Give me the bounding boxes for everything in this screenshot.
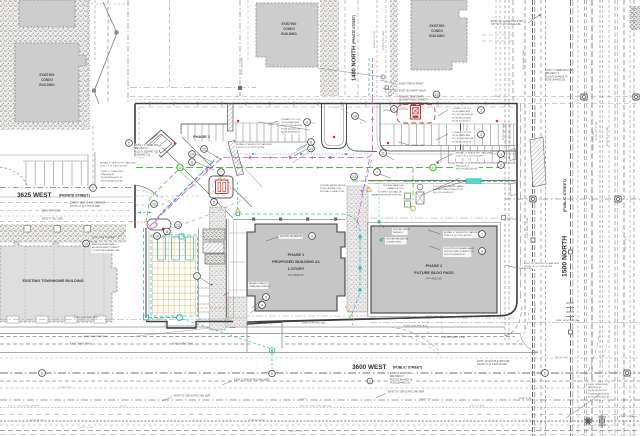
svg-text:1480 NORTH: 1480 NORTH bbox=[352, 46, 358, 81]
svg-text:PHASE LINE: PHASE LINE bbox=[411, 144, 424, 147]
svg-text:EXIST 8" WL: EXIST 8" WL bbox=[60, 387, 73, 389]
svg-text:5: 5 bbox=[213, 200, 215, 204]
svg-text:W: W bbox=[155, 372, 157, 374]
svg-text:EXISTING: EXISTING bbox=[40, 73, 55, 77]
svg-text:MANHOLE #4T2: MANHOLE #4T2 bbox=[388, 187, 405, 190]
svg-text:EXISTING TOWNHOME BUILDING: EXISTING TOWNHOME BUILDING bbox=[22, 279, 83, 283]
svg-text:9: 9 bbox=[481, 249, 483, 253]
svg-text:EXIST. ELECTRIC BOX: EXIST. ELECTRIC BOX bbox=[404, 326, 428, 328]
svg-text:6: 6 bbox=[191, 160, 193, 164]
svg-text:EXIST. GAS LINE: EXIST. GAS LINE bbox=[502, 123, 505, 140]
svg-text:EXIST. ELECTRIC LINE: EXIST. ELECTRIC LINE bbox=[510, 123, 512, 146]
svg-text:EXISTING: EXISTING bbox=[430, 24, 445, 28]
svg-text:RIM=4625.26: RIM=4625.26 bbox=[588, 387, 602, 389]
svg-text:PROPOSED BUILDING A1: PROPOSED BUILDING A1 bbox=[272, 259, 321, 264]
svg-text:RIM=4626.52: RIM=4626.52 bbox=[101, 174, 115, 176]
svg-text:12: 12 bbox=[202, 147, 206, 151]
svg-text:EXIST. 4" SDMH-W03 140: EXIST. 4" SDMH-W03 140 bbox=[545, 70, 573, 72]
svg-text:CONNECT TO TOP: CONNECT TO TOP bbox=[452, 132, 472, 134]
svg-text:16: 16 bbox=[353, 114, 357, 118]
svg-text:EXIST 16" SDR-35 PVC SAN SWR: EXIST 16" SDR-35 PVC SAN SWR bbox=[388, 391, 424, 394]
svg-text:INSTALL DUAL EV: INSTALL DUAL EV bbox=[249, 282, 268, 285]
svg-text:(PRIVATE STREET): (PRIVATE STREET) bbox=[59, 194, 90, 198]
svg-text:INSTALL 4" SDMH-W03: INSTALL 4" SDMH-W03 bbox=[456, 162, 480, 165]
svg-text:BUILDING: BUILDING bbox=[429, 34, 445, 38]
svg-text:FL(OUT) 40=4622.00: FL(OUT) 40=4622.00 bbox=[280, 236, 303, 238]
svg-text:SERVICE: SERVICE bbox=[393, 232, 403, 234]
svg-text:EXIST. 12" PVC IRR: EXIST. 12" PVC IRR bbox=[607, 127, 609, 146]
svg-text:REMOVE TEMPORARY: REMOVE TEMPORARY bbox=[399, 96, 425, 99]
svg-text:BLOWOFF AND CONNECT: BLOWOFF AND CONNECT bbox=[399, 99, 428, 102]
svg-text:12: 12 bbox=[152, 202, 156, 206]
svg-text:FUTURE IRRIGATION: FUTURE IRRIGATION bbox=[386, 238, 408, 241]
svg-text:137.67 L.F. @ 1.70% SLOPE: 137.67 L.F. @ 1.70% SLOPE bbox=[70, 206, 100, 208]
svg-text:FL(IN) (S)=4612.05: FL(IN) (S)=4612.05 bbox=[390, 383, 411, 385]
svg-text:OF SS MAIN 4650: OF SS MAIN 4650 bbox=[281, 121, 300, 124]
svg-text:PHASE 1: PHASE 1 bbox=[288, 252, 305, 257]
svg-text:9: 9 bbox=[311, 234, 313, 238]
svg-text:EXIST. ELECTRIC BOX: EXIST. ELECTRIC BOX bbox=[84, 336, 108, 338]
svg-text:INSTALL 4" SDMH-W03: INSTALL 4" SDMH-W03 bbox=[134, 144, 159, 147]
svg-text:EXIST. 21" SAN S: EXIST. 21" SAN S bbox=[619, 415, 637, 418]
svg-text:EXIST 12" PVC: EXIST 12" PVC bbox=[535, 106, 537, 120]
svg-text:1: 1 bbox=[500, 152, 502, 156]
svg-text:5: 5 bbox=[265, 295, 267, 299]
svg-text:G-17 PUE: G-17 PUE bbox=[507, 219, 517, 221]
svg-text:EXIST 16" SDR-35 PVC SAN SWR: EXIST 16" SDR-35 PVC SAN SWR bbox=[8, 405, 40, 408]
svg-text:S: S bbox=[432, 166, 434, 170]
svg-text:CONNECT TO TOP: CONNECT TO TOP bbox=[452, 108, 472, 110]
svg-text:PHASE 1: PHASE 1 bbox=[193, 134, 211, 139]
svg-text:EXIST 8" PVC WL: EXIST 8" PVC WL bbox=[42, 211, 61, 213]
svg-text:TO EXISTING WATER LINE: TO EXISTING WATER LINE bbox=[92, 249, 120, 252]
svg-text:FL(IN) (N)=4617.07: FL(IN) (N)=4617.07 bbox=[588, 390, 608, 392]
svg-text:3: 3 bbox=[306, 120, 308, 124]
svg-text:EXIST: EXIST bbox=[300, 399, 307, 401]
svg-text:EXIST. FIRE HYDRANT: EXIST. FIRE HYDRANT bbox=[399, 83, 424, 86]
svg-text:1: 1 bbox=[481, 232, 483, 236]
svg-text:EXIST. 24" IRR: EXIST. 24" IRR bbox=[250, 419, 264, 421]
svg-text:EXIST. ASPH. TRAIL: EXIST. ASPH. TRAIL bbox=[526, 217, 529, 238]
svg-text:(PUBLIC STREET): (PUBLIC STREET) bbox=[393, 366, 422, 370]
svg-text:PHASE 2: PHASE 2 bbox=[426, 263, 443, 268]
svg-text:FOR FUTURE CONNECTION: FOR FUTURE CONNECTION bbox=[433, 189, 463, 191]
svg-text:EXIST 15" RCP: EXIST 15" RCP bbox=[625, 235, 627, 250]
svg-text:CONDO: CONDO bbox=[41, 78, 53, 82]
svg-text:FL(OUT) (SE)=4617.32: FL(OUT) (SE)=4617.32 bbox=[134, 151, 159, 153]
svg-text:EXIST 16" SDR: EXIST 16" SDR bbox=[470, 406, 485, 408]
svg-text:5: 5 bbox=[393, 107, 395, 111]
svg-text:3: 3 bbox=[480, 108, 482, 112]
svg-text:FL(OUT) (E)=4618.45: FL(OUT) (E)=4618.45 bbox=[452, 138, 474, 140]
svg-text:FL(IN) (E)=4618.02: FL(IN) (E)=4618.02 bbox=[452, 120, 472, 122]
svg-text:7: 7 bbox=[196, 274, 198, 278]
svg-text:RIM=4627.71: RIM=4627.71 bbox=[545, 73, 560, 75]
svg-text:105.86 L.F. @ 0.02% SLOPE: 105.86 L.F. @ 0.02% SLOPE bbox=[477, 364, 507, 366]
svg-text:EXIST. 12" PVC IRR: EXIST. 12" PVC IRR bbox=[593, 131, 595, 150]
svg-text:RIM=4624.37: RIM=4624.37 bbox=[390, 376, 405, 378]
svg-text:13: 13 bbox=[84, 242, 88, 246]
svg-text:3: 3 bbox=[480, 133, 482, 137]
svg-text:4: 4 bbox=[261, 303, 263, 307]
svg-text:14: 14 bbox=[190, 152, 194, 156]
svg-text:40.66 L.F. @ 0.77% SLOPE: 40.66 L.F. @ 0.77% SLOPE bbox=[444, 235, 472, 237]
svg-text:FL(IN) (N)=4618.45: FL(IN) (N)=4618.45 bbox=[452, 141, 472, 143]
svg-text:7: 7 bbox=[376, 170, 378, 174]
svg-text:EXIST 8" WL: EXIST 8" WL bbox=[420, 399, 433, 401]
svg-text:FUTURE WATER: FUTURE WATER bbox=[393, 228, 411, 231]
svg-text:1500 NORTH: 1500 NORTH bbox=[562, 236, 569, 277]
svg-text:248 L.F.: 248 L.F. bbox=[120, 406, 128, 408]
svg-text:13: 13 bbox=[352, 175, 356, 179]
svg-text:PHASE LINE: PHASE LINE bbox=[519, 267, 532, 270]
svg-text:OF SS MAIN 4650: OF SS MAIN 4650 bbox=[452, 110, 471, 113]
svg-text:FL(IN) (N)=4617.86: FL(IN) (N)=4617.86 bbox=[281, 128, 301, 130]
svg-text:14: 14 bbox=[309, 147, 313, 151]
svg-text:EXIST 8" PVC SWR: EXIST 8" PVC SWR bbox=[42, 219, 63, 221]
svg-text:7: 7 bbox=[220, 170, 222, 174]
svg-text:CONNECT TO TOP: CONNECT TO TOP bbox=[281, 119, 301, 121]
svg-text:(PRIVATE STREET): (PRIVATE STREET) bbox=[352, 15, 356, 44]
svg-text:13: 13 bbox=[176, 223, 180, 227]
svg-text:FUTURE BLDG PADS: FUTURE BLDG PADS bbox=[414, 270, 454, 275]
svg-text:PLUG PIPE STUB AND MARK: PLUG PIPE STUB AND MARK bbox=[433, 185, 464, 188]
svg-text:RIM=4626.10: RIM=4626.10 bbox=[134, 148, 149, 150]
svg-text:10: 10 bbox=[155, 234, 159, 238]
svg-text:EXISTING: EXISTING bbox=[282, 22, 297, 26]
svg-text:PLUG PIPE STUB AND MARK: PLUG PIPE STUB AND MARK bbox=[444, 247, 475, 250]
svg-text:EXIST 8" SDR-35 PVC SAN SWR: EXIST 8" SDR-35 PVC SAN SWR bbox=[70, 202, 105, 205]
svg-text:FL(IN)=4617.32: FL(IN)=4617.32 bbox=[134, 155, 151, 157]
svg-text:CONDO: CONDO bbox=[431, 29, 443, 33]
svg-text:EXIST. ASPH. TRAIL: EXIST. ASPH. TRAIL bbox=[522, 49, 525, 70]
svg-text:EXIST. BLOWOFF VALVE: EXIST. BLOWOFF VALVE bbox=[399, 90, 426, 93]
svg-text:EXIST. 16" DUCTILE IRON IRR: EXIST. 16" DUCTILE IRON IRR bbox=[477, 361, 510, 363]
svg-text:EXIST. ASPH. TRAIL: EXIST. ASPH. TRAIL bbox=[172, 343, 194, 346]
svg-text:INSTALL 4" SDR-35 PVC SAN SWR: INSTALL 4" SDR-35 PVC SAN SWR bbox=[100, 162, 136, 165]
svg-text:FL(OUT) 40=4626.37: FL(OUT) 40=4626.37 bbox=[433, 192, 455, 194]
svg-text:EXIST. GAS LINE: EXIST. GAS LINE bbox=[241, 57, 244, 75]
svg-text:RIM=4626.10: RIM=4626.10 bbox=[456, 166, 470, 168]
svg-text:FL(OUT) 40=4622.00: FL(OUT) 40=4622.00 bbox=[444, 254, 466, 256]
svg-text:CONDO: CONDO bbox=[283, 27, 295, 31]
svg-text:FL(OUT) (E)=4618.48: FL(OUT) (E)=4618.48 bbox=[456, 169, 478, 171]
svg-text:EXIST. ELECTRIC LINE: EXIST. ELECTRIC LINE bbox=[556, 320, 580, 322]
svg-text:INSTALL 4" SDR-35 PVC SAN SWR: INSTALL 4" SDR-35 PVC SAN SWR bbox=[444, 231, 480, 234]
svg-text:EXIST. CURB: EXIST. CURB bbox=[555, 357, 568, 359]
svg-text:11: 11 bbox=[381, 151, 385, 155]
svg-text:FF=4626.50: FF=4626.50 bbox=[288, 273, 304, 277]
svg-text:EXIST. 24" IRR: EXIST. 24" IRR bbox=[30, 419, 44, 421]
svg-text:EXIST. ELECTRIC LINE: EXIST. ELECTRIC LINE bbox=[302, 323, 326, 325]
svg-text:FUTURE CONNECTION: FUTURE CONNECTION bbox=[320, 191, 345, 193]
svg-text:FL(OUT) (E)=4615.76: FL(OUT) (E)=4615.76 bbox=[545, 76, 568, 78]
svg-text:EXIST. FIRE HYDRANT: EXIST. FIRE HYDRANT bbox=[92, 236, 116, 239]
svg-text:EXIST. SDMH-W34Y: EXIST. SDMH-W34Y bbox=[588, 384, 609, 386]
svg-text:FL(IN) (NW)=4617.10: FL(IN) (NW)=4617.10 bbox=[101, 177, 123, 179]
svg-text:8: 8 bbox=[166, 230, 168, 234]
svg-text:EXIST 16" SDR-35 PVC SAN SWR: EXIST 16" SDR-35 PVC SAN SWR bbox=[174, 395, 210, 398]
svg-text:S: S bbox=[369, 379, 371, 383]
svg-text:OF SS MAIN 4650: OF SS MAIN 4650 bbox=[452, 134, 471, 137]
svg-text:FL(OUT) (N)=4617.06: FL(OUT) (N)=4617.06 bbox=[390, 379, 413, 381]
svg-text:1-STORY: 1-STORY bbox=[288, 266, 305, 271]
svg-text:EXIST. ASPH. TRAIL: EXIST. ASPH. TRAIL bbox=[70, 343, 92, 346]
svg-text:INSTALL 4" SDR-35 PVC SAN SWR: INSTALL 4" SDR-35 PVC SAN SWR bbox=[456, 152, 492, 155]
svg-text:FUTURE SAMPLING: FUTURE SAMPLING bbox=[383, 184, 404, 187]
svg-text:EXIST 4" SDMH-W121: EXIST 4" SDMH-W121 bbox=[101, 171, 124, 173]
svg-text:EXIST. 12" WL: EXIST. 12" WL bbox=[290, 431, 304, 433]
svg-text:EXIST 8" PVC SWR: EXIST 8" PVC SWR bbox=[383, 31, 385, 50]
svg-text:EXIST: EXIST bbox=[535, 303, 537, 310]
svg-text:BUILDING: BUILDING bbox=[281, 32, 297, 36]
svg-text:276.72 L.F. @ 0.30% SLOPE: 276.72 L.F. @ 0.30% SLOPE bbox=[491, 24, 521, 26]
svg-text:EXIST. ELECTRIC LINE: EXIST. ELECTRIC LINE bbox=[74, 317, 98, 319]
svg-text:2: 2 bbox=[128, 141, 130, 145]
svg-text:FF=4626.50: FF=4626.50 bbox=[426, 277, 442, 281]
svg-text:FL(OUT) (S)=4617.02: FL(OUT) (S)=4617.02 bbox=[588, 396, 610, 398]
svg-text:FUTURE 1,500 GALLON: FUTURE 1,500 GALLON bbox=[378, 191, 403, 194]
svg-text:2: 2 bbox=[500, 163, 502, 167]
svg-text:FL(IN) (N)=4615.95: FL(IN) (N)=4615.95 bbox=[545, 80, 566, 82]
svg-text:20.21 L.F. @ 0.92% SLOPE: 20.21 L.F. @ 0.92% SLOPE bbox=[100, 166, 128, 168]
svg-text:EXIST 8" SDMH-W03: EXIST 8" SDMH-W03 bbox=[390, 373, 413, 375]
svg-text:EXIST. 12" PVC WL: EXIST. 12" PVC WL bbox=[596, 121, 598, 140]
svg-text:S: S bbox=[179, 166, 181, 170]
svg-text:FL(IN) (E)=4618.02: FL(IN) (E)=4618.02 bbox=[281, 131, 301, 133]
svg-text:6: 6 bbox=[310, 140, 312, 144]
svg-text:STUB LATERAL FOR: STUB LATERAL FOR bbox=[320, 187, 342, 190]
svg-text:BLOWOFF AND CONNECT: BLOWOFF AND CONNECT bbox=[92, 246, 120, 249]
svg-text:EXIST. 12" SDR-35 PVC SAN SWR: EXIST. 12" SDR-35 PVC SAN SWR bbox=[524, 262, 559, 265]
svg-text:INSTALL 4" SDR-35 PVC SAN SWR: INSTALL 4" SDR-35 PVC SAN SWR bbox=[236, 143, 272, 146]
svg-text:EXIST. ASPH. TRAIL: EXIST. ASPH. TRAIL bbox=[444, 336, 466, 339]
svg-text:REMOVE TEMPORARY: REMOVE TEMPORARY bbox=[92, 243, 116, 246]
svg-text:(PUBLIC STREET): (PUBLIC STREET) bbox=[563, 179, 567, 212]
svg-text:3625 WEST: 3625 WEST bbox=[17, 192, 52, 199]
svg-text:193.63 L.F. @ 0.52% SLOPE: 193.63 L.F. @ 0.52% SLOPE bbox=[236, 147, 265, 149]
svg-text:3600 WEST: 3600 WEST bbox=[352, 364, 387, 371]
svg-text:BUILDING: BUILDING bbox=[39, 83, 55, 87]
svg-text:FL(OUT) (S)=4616.95: FL(OUT) (S)=4616.95 bbox=[101, 180, 123, 182]
svg-text:12.97 L.F. @ 1.77% SLOPE: 12.97 L.F. @ 1.77% SLOPE bbox=[456, 156, 484, 158]
svg-text:FL(IN) (N)=4618.40: FL(IN) (N)=4618.40 bbox=[452, 117, 472, 119]
svg-text:FL(OUT) (E)=4618.40: FL(OUT) (E)=4618.40 bbox=[452, 114, 474, 116]
svg-text:CHARGING STATION: CHARGING STATION bbox=[249, 285, 271, 288]
svg-text:EXIST. 12" WL: EXIST. 12" WL bbox=[80, 427, 94, 429]
svg-text:EXIST 8" PVC WL: EXIST 8" PVC WL bbox=[374, 30, 376, 48]
svg-text:EXIST 8" WL: EXIST 8" WL bbox=[519, 398, 533, 400]
svg-text:GREASE INTERCEPTOR #4T2: GREASE INTERCEPTOR #4T2 bbox=[371, 194, 403, 197]
svg-text:EXIST 16" SDR-35 PVC SAN SWR: EXIST 16" SDR-35 PVC SAN SWR bbox=[300, 405, 332, 408]
svg-text:FUTURE WATER METER: FUTURE WATER METER bbox=[320, 184, 346, 187]
svg-text:EXIST 8" SDR-35 PVC SAN SWR: EXIST 8" SDR-35 PVC SAN SWR bbox=[234, 379, 269, 382]
svg-text:FOR FUTURE CONNECTION: FOR FUTURE CONNECTION bbox=[444, 251, 474, 253]
svg-text:CONNECTION: CONNECTION bbox=[386, 242, 401, 244]
